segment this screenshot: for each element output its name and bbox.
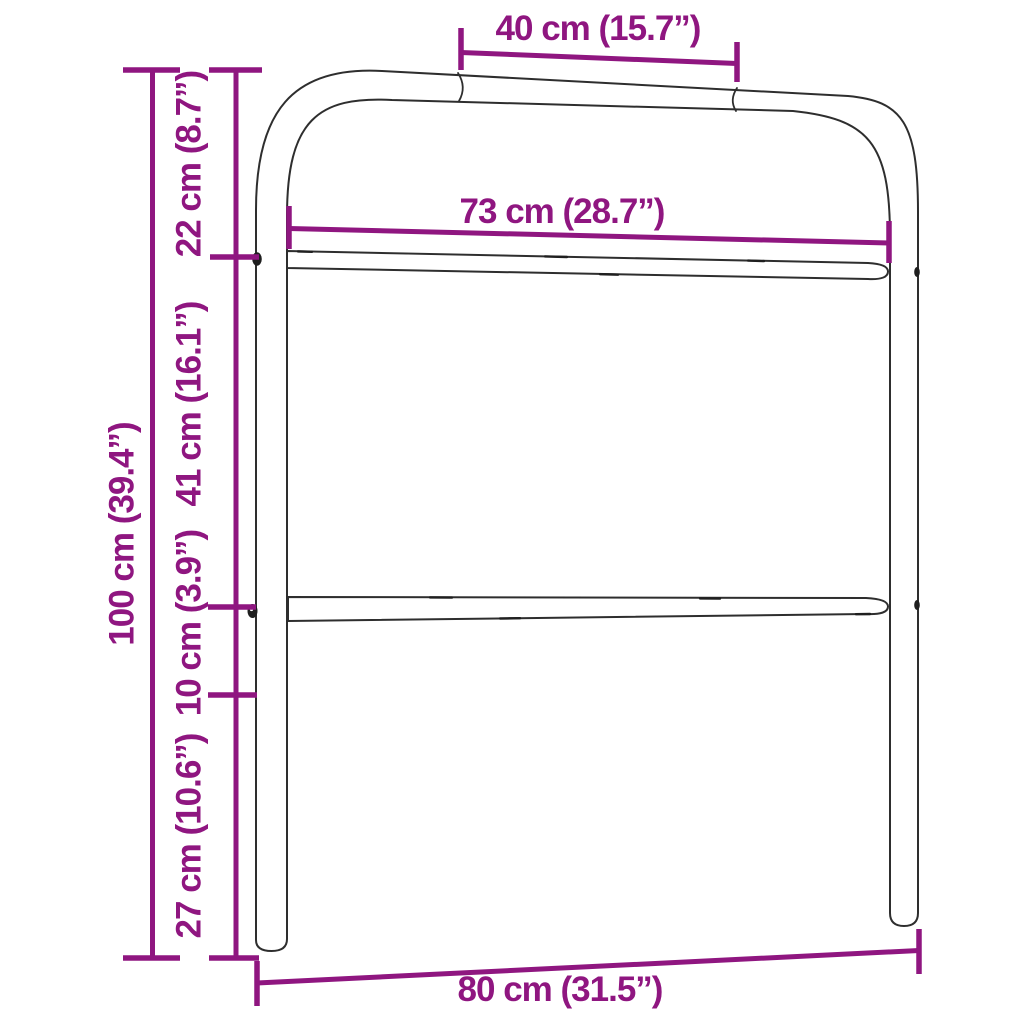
screw-lower-right — [914, 600, 920, 610]
headboard-dimension-diagram: 40 cm (15.7”) 73 cm (28.7”) 80 cm (31.5”… — [0, 0, 1024, 1024]
upper-rail-seam — [748, 261, 764, 262]
rail-gap-label: 10 cm (3.9”) — [170, 530, 209, 716]
top-bar-section-label: 40 cm (15.7”) — [496, 9, 701, 48]
dimension-overall-width: 80 cm (31.5”) — [257, 929, 919, 1009]
overall-height-label: 100 cm (39.4”) — [103, 422, 142, 645]
diagram-canvas: 40 cm (15.7”) 73 cm (28.7”) 80 cm (31.5”… — [0, 0, 1024, 1024]
overall-width-label: 80 cm (31.5”) — [458, 970, 663, 1009]
dimension-line — [461, 53, 737, 64]
panel-section-label: 41 cm (16.1”) — [170, 302, 209, 507]
upper-rail-seam — [600, 274, 618, 275]
dimension-overall-height: 100 cm (39.4”) — [103, 70, 181, 958]
top-section-label: 22 cm (8.7”) — [170, 71, 209, 257]
upper-rail — [287, 251, 888, 279]
leg-section-label: 27 cm (10.6”) — [170, 734, 209, 939]
screw-upper-right — [914, 267, 920, 277]
dimension-height-segments: 22 cm (8.7”) 41 cm (16.1”) 10 cm (3.9”) … — [170, 70, 263, 958]
lower-rail — [288, 597, 888, 621]
upper-rail-seam — [545, 256, 567, 257]
inner-width-label: 73 cm (28.7”) — [460, 192, 665, 231]
dimension-top-bar-section: 40 cm (15.7”) — [461, 9, 737, 82]
